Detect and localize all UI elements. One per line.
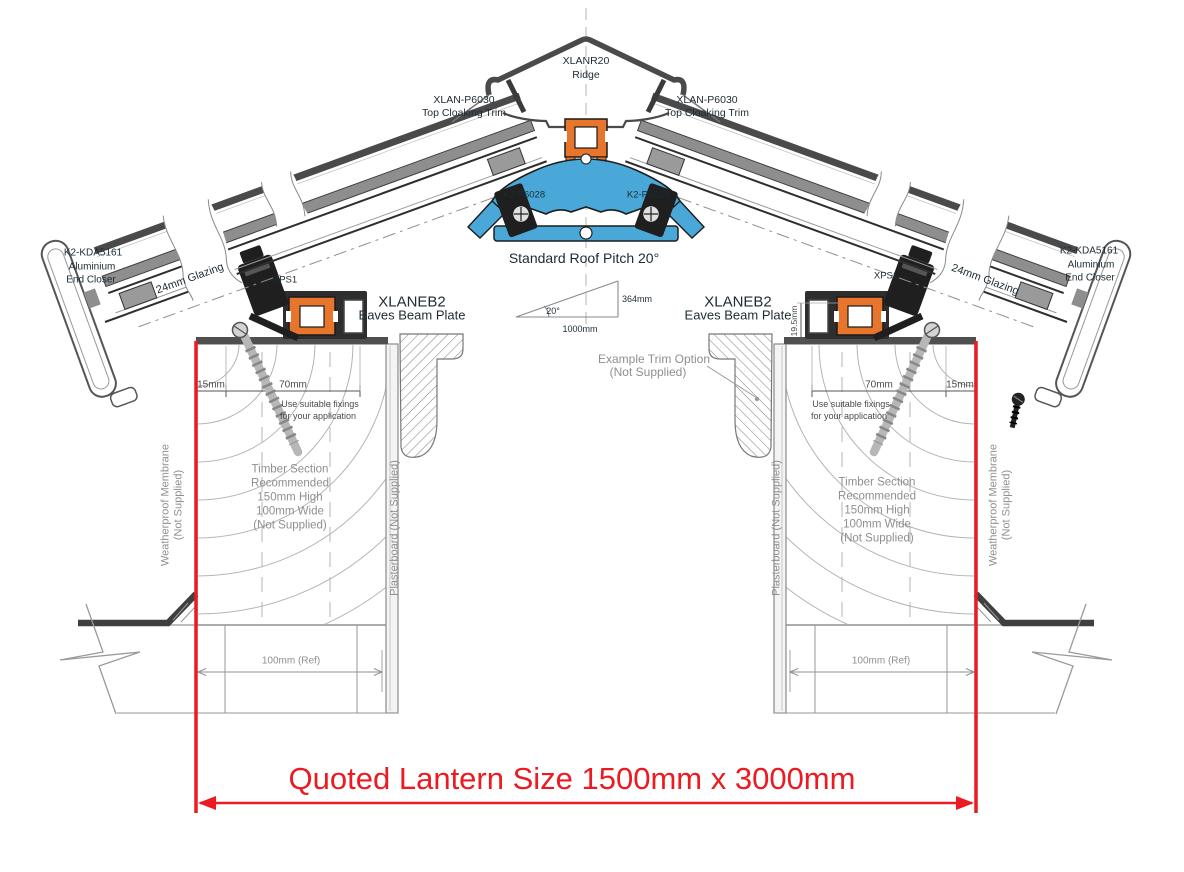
timber-note-right-4: 100mm Wide bbox=[843, 518, 911, 531]
cloaking-trim-code-left: XLAN-P6030 bbox=[433, 94, 494, 106]
fixing-note-line2-right: for your application bbox=[811, 411, 887, 421]
edge-dim-left: 15mm bbox=[197, 379, 225, 391]
example-trim-profile bbox=[400, 334, 463, 457]
edge-dim-right: 15mm bbox=[946, 379, 974, 391]
end-closer-code-left: K2-KDA5161 bbox=[64, 247, 122, 259]
membrane-line bbox=[78, 594, 196, 623]
pitch-rise-label: 364mm bbox=[622, 294, 652, 304]
technical-drawing-canvas bbox=[0, 0, 1184, 872]
pitch-base-label: 1000mm bbox=[562, 324, 597, 334]
gasket-code-right: XPS1 bbox=[874, 272, 898, 283]
end-closer-profile bbox=[38, 232, 138, 414]
cloaking-trim-name-right: Top Cloaking Trim bbox=[665, 107, 749, 119]
ridge-fixing-code-right: K2-P6028 bbox=[627, 191, 669, 202]
timber-note-left-1: Timber Section bbox=[252, 463, 329, 476]
fixing-note-line1-left: Use suitable fixings bbox=[281, 399, 359, 409]
gasket-code-left: XPS1 bbox=[273, 276, 297, 287]
ridge-code-label: XLANR20 bbox=[563, 55, 610, 67]
eaves-beam-name-right: Eaves Beam Plate bbox=[685, 309, 792, 324]
ceiling-wall-lines bbox=[78, 625, 398, 713]
kerb-ref-dim-right: 100mm (Ref) bbox=[852, 655, 910, 667]
technical-drawing-page: XLANR20 Ridge XLAN-P6030 Top Cloaking Tr… bbox=[0, 0, 1184, 872]
plasterboard-label-right: Plasterboard (Not Supplied) bbox=[771, 460, 784, 596]
fixing-zone-dim-right: 70mm bbox=[865, 379, 893, 391]
pitch-caption: Standard Roof Pitch 20° bbox=[509, 250, 659, 266]
end-closer-name-right: End Closer bbox=[1065, 272, 1114, 284]
timber-note-left-3: 150mm High bbox=[257, 491, 322, 504]
membrane-line2: (Not Supplied) bbox=[1000, 444, 1013, 566]
membrane-line1: Weatherproof Membrane bbox=[987, 444, 1000, 566]
fixing-note-line1-right: Use suitable fixings bbox=[812, 399, 890, 409]
fixing-zone-dim-left: 70mm bbox=[279, 379, 307, 391]
pitch-triangle bbox=[516, 281, 618, 317]
membrane-label-left: Weatherproof Membrane (Not Supplied) bbox=[159, 444, 184, 566]
timber-note-right-5: (Not Supplied) bbox=[840, 532, 914, 545]
timber-note-right-1: Timber Section bbox=[839, 476, 916, 489]
eaves-beam-name-left: Eaves Beam Plate bbox=[359, 309, 466, 324]
beam-height-dim-label: 19.5mm bbox=[790, 306, 800, 337]
loose-screw-icon bbox=[1006, 392, 1026, 429]
end-closer-name-left: End Closer bbox=[66, 274, 115, 286]
trim-option-line2: (Not Supplied) bbox=[610, 366, 687, 380]
membrane-line1: Weatherproof Membrane bbox=[159, 444, 172, 566]
fixing-note-line2-left: for your application bbox=[280, 411, 356, 421]
cloaking-trim-code-right: XLAN-P6030 bbox=[676, 94, 737, 106]
quoted-size-label: Quoted Lantern Size 1500mm x 3000mm bbox=[289, 761, 856, 797]
timber-note-left-4: 100mm Wide bbox=[256, 505, 324, 518]
cloaking-trim-name-left: Top Cloaking Trim bbox=[422, 107, 506, 119]
end-closer-material-right: Aluminium bbox=[1068, 259, 1115, 271]
timber-note-left-5: (Not Supplied) bbox=[253, 519, 327, 532]
plasterboard-label-left: Plasterboard (Not Supplied) bbox=[389, 460, 402, 596]
kerb-ref-dim-left: 100mm (Ref) bbox=[262, 655, 320, 667]
end-closer-code-right: K2-KDA5161 bbox=[1060, 245, 1118, 257]
timber-note-right-2: Recommended bbox=[838, 490, 916, 503]
pitch-angle-label: 20° bbox=[546, 306, 560, 316]
ridge-name-label: Ridge bbox=[572, 69, 599, 81]
membrane-label-right: Weatherproof Membrane (Not Supplied) bbox=[987, 444, 1012, 566]
ridge-fixing-code-left: K2-P6028 bbox=[503, 191, 545, 202]
end-closer-material-left: Aluminium bbox=[69, 261, 116, 273]
timber-note-right-3: 150mm High bbox=[844, 504, 909, 517]
membrane-line2: (Not Supplied) bbox=[172, 444, 185, 566]
eaves-beam-assembly bbox=[283, 291, 367, 339]
timber-note-left-2: Recommended bbox=[251, 477, 329, 490]
